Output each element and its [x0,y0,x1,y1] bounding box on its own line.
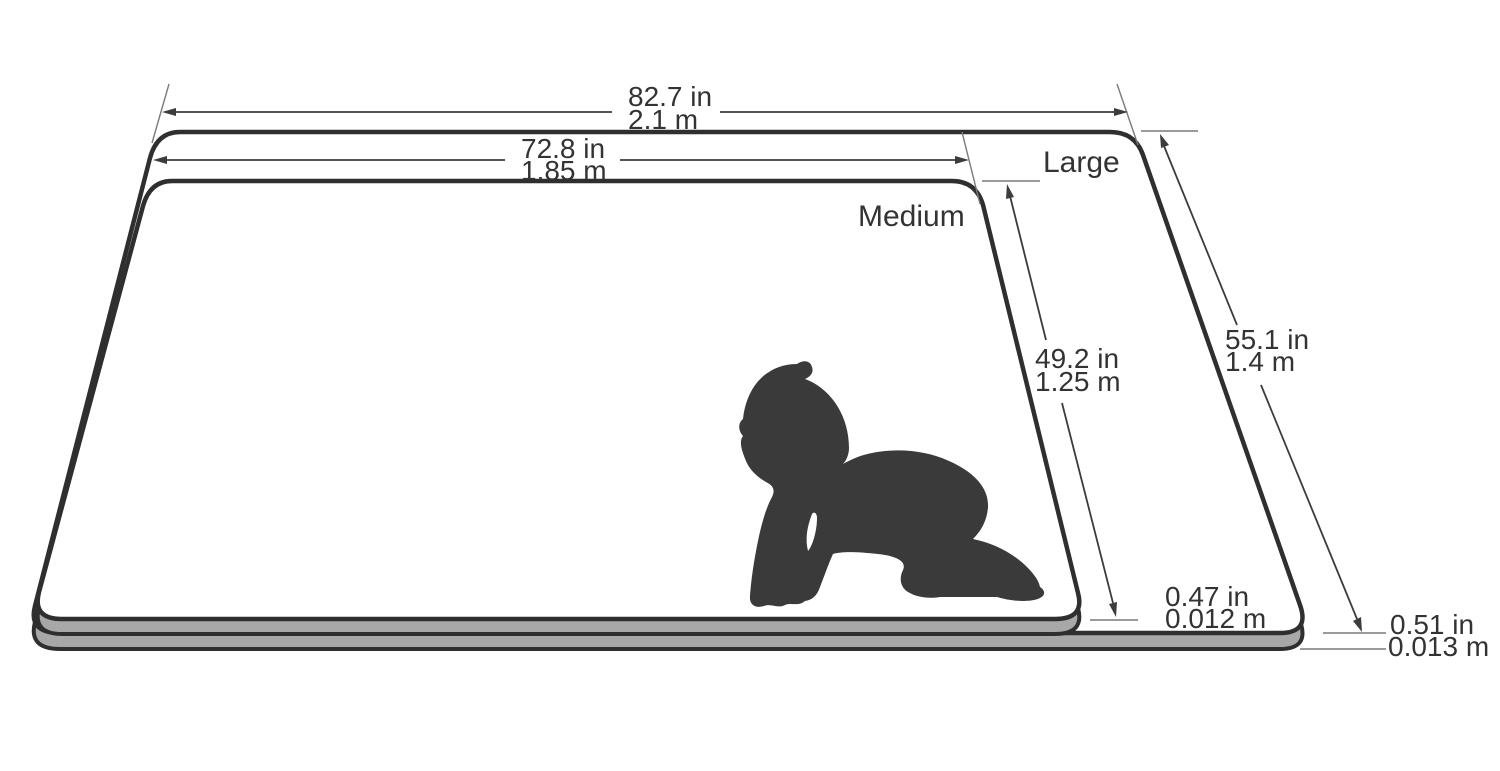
play-mat-dimension-diagram: 82.7 in 2.1 m 72.8 in 1.85 m 49.2 in 1.2… [0,0,1500,771]
arrowhead-left [162,108,176,116]
large-size-label: Large [1043,146,1120,179]
medium-width-meters: 1.85 m [521,155,607,186]
arrowhead-bottom [1353,617,1362,632]
large-width-meters: 2.1 m [628,104,698,135]
diagram-canvas: 82.7 in 2.1 m 72.8 in 1.85 m 49.2 in 1.2… [0,0,1500,771]
medium-thickness-meters: 0.012 m [1165,603,1266,634]
large-depth-meters: 1.4 m [1225,346,1295,377]
arrowhead-top [1160,134,1169,148]
medium-depth-meters: 1.25 m [1035,366,1121,397]
dimension-large-thickness: 0.51 in 0.013 m [1300,609,1489,662]
large-thickness-meters: 0.013 m [1388,631,1489,662]
medium-size-label: Medium [858,200,965,233]
